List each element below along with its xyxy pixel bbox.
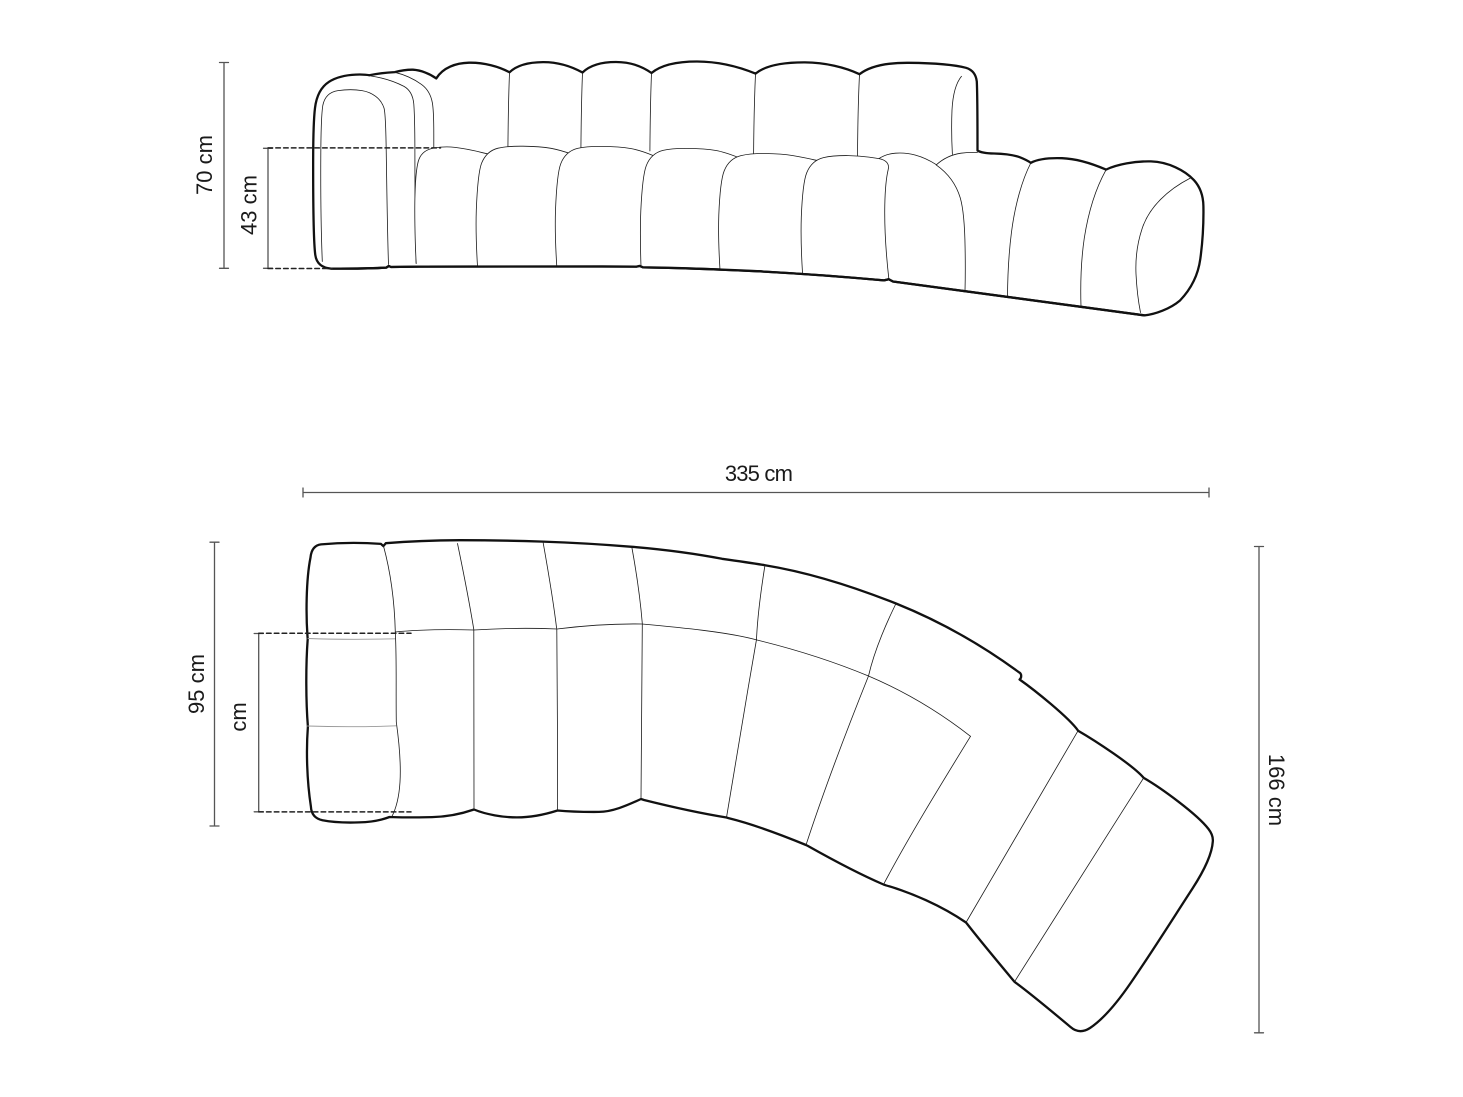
svg-text:335 cm: 335 cm	[725, 461, 792, 486]
svg-text:166 cm: 166 cm	[1264, 754, 1289, 826]
svg-text:70 cm: 70 cm	[192, 135, 217, 195]
svg-text:cm: cm	[226, 702, 251, 731]
svg-text:43 cm: 43 cm	[237, 175, 262, 235]
svg-text:95 cm: 95 cm	[184, 654, 209, 714]
